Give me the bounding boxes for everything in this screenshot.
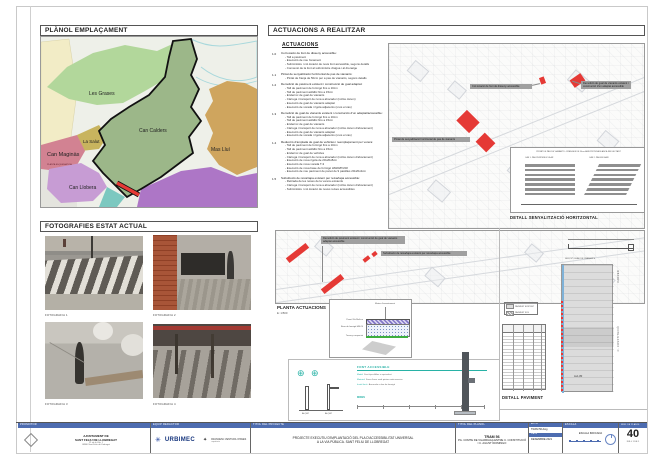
zone-label-can-calders: Can Calders: [139, 128, 167, 134]
tb-equip-content: ✳ URBIMEC ✦ FRANCESC VENTURA I PANES arq…: [151, 428, 250, 453]
ventura-role: arquitecte: [211, 441, 246, 443]
seccio-ann-1: Panot 20x20x4cm: [332, 319, 363, 321]
fotografies-title: FOTOGRAFIES ESTAT ACTUAL: [40, 221, 258, 232]
stripe: [589, 183, 632, 186]
plan-symbol-icon: ⊕: [297, 368, 305, 379]
table-col-line: [513, 325, 514, 391]
callout-reixa: Substitució de reixa/tapa existent per r…: [381, 251, 467, 256]
stripe: [584, 193, 627, 196]
callout-font: Col·locació de font de disseny accessibl…: [470, 84, 532, 89]
marker-pas-1: [456, 110, 479, 133]
scale-tick: [583, 440, 585, 442]
tb-num: NÚM. DE PLÀNOL 40 FULL 1 DE 1: [618, 423, 647, 453]
fotografies-title-text: FOTOGRAFIES ESTAT ACTUAL: [45, 223, 147, 230]
urbimec-gear-icon: ✳: [155, 436, 161, 444]
senyalitzacio-case-left: CAS 1: PAS PERPENDICULAR: [525, 157, 553, 159]
spec-value: Fosa d'acer amb pintura anticorrosiva: [366, 379, 403, 381]
zone-label-can-maginas: Can Maginàs: [47, 152, 79, 158]
paviment-data-table: [502, 324, 546, 390]
mides-title: MIDES: [357, 396, 365, 399]
stripe: [525, 178, 575, 181]
callout-demolicio-paviment: Demolició de paviment existent i constru…: [321, 236, 405, 244]
font-spout: [468, 378, 475, 383]
seccio-line: [568, 248, 634, 249]
ventura-mark-icon: ✦: [203, 437, 207, 443]
actuacio-bullets: - Tall de paviment de formigó fins a 10c…: [281, 144, 373, 174]
senyalitzacio-note: PINTAT DE PAS DE VIANANTS - FRANGES DE 5…: [515, 151, 642, 153]
stripes-straight: [525, 164, 575, 197]
actuacions-list-title: ACTUACIONS: [282, 42, 386, 48]
photo1-people: [63, 239, 66, 247]
photo-2-caption: FOTOGRAFIA 2: [153, 313, 176, 317]
baseline: [521, 204, 637, 205]
photo-3: [45, 322, 143, 399]
spec-value: Ancorada a dau de formigó: [369, 384, 395, 386]
photo1-curb: [45, 294, 143, 310]
photo4-awning: [153, 326, 251, 330]
marker-reixa-1: [363, 255, 371, 262]
emplacament-title: PLÀNOL EMPLAÇAMENT: [40, 25, 258, 36]
detall-paviment-bottom: [499, 409, 647, 410]
photo2-brick-wall: [153, 235, 177, 310]
scale-tick: [590, 440, 592, 442]
seccio-hook: [568, 244, 569, 249]
building-outline: [407, 60, 430, 82]
font-panel-title: FONT ACCESSIBLE: [357, 365, 390, 369]
actuacio-num: 1.4: [272, 141, 281, 175]
seccio-ann-3: Terreny compactat: [332, 335, 363, 337]
font-render: [452, 352, 478, 420]
emplacament-panel: PLÀNOL EMPLAÇAMENT Les Grases Can Calder…: [40, 25, 258, 207]
actuacions-header: ACTUACIONS A REALITZAR: [268, 25, 645, 36]
map-note: PLANTA ESQUEMÀTICA: [47, 164, 72, 166]
legend-label: PAVIMENT NOU: [515, 312, 529, 314]
street-label-constitucio: C. CONSTITUCIÓ: [617, 326, 620, 351]
tb-promotor-content: AJUNTAMENT DE SANT FELIU DE LLOBREGAT Pl…: [18, 428, 150, 453]
planta-actuacions-scale: E: 1/500: [277, 311, 287, 315]
stripes-skewed: [583, 164, 641, 197]
tb-projecte: TÍTOL DEL PROJECTE PROJECTE EXECUTIU D'I…: [250, 423, 455, 453]
actuacio-item: 1.1 Pintat de senyalització horitzontal …: [272, 73, 386, 80]
table-header: [503, 325, 545, 333]
paviment-plan: A≥1,80: [561, 264, 613, 392]
actuacions-header-text: ACTUACIONS A REALITZAR: [273, 27, 365, 34]
zone-label-la-salut: La Salut: [83, 139, 100, 144]
stripe: [525, 164, 575, 167]
actuacio-num: 1.5: [272, 177, 281, 192]
legend-swatch-nou: [506, 311, 514, 316]
paviment-dark-band: [562, 327, 614, 347]
tb-escala: ESCALA ESCALA INDICADA: [562, 423, 618, 453]
stripe: [525, 174, 575, 177]
detall-senyalitzacio-box: PINTAT DE PAS DE VIANANTS - FRANGES DE 5…: [510, 147, 645, 213]
font-base-plate: [454, 411, 476, 415]
marker-gual-2: [286, 243, 309, 263]
alcat-caption-2: ALÇAT: [325, 413, 332, 415]
actuacio-item: 1.2 Demolició de paviment existent i con…: [272, 83, 386, 109]
legend-swatch-existent: [506, 304, 514, 309]
graphic-scale: [569, 441, 601, 442]
dim-tick: [484, 405, 485, 409]
photo3-sphere-1: [93, 322, 113, 340]
data-value: DESEMBRE 2021: [529, 437, 562, 443]
actuacio-bullets: - Tall a paviment- Execució de nou fonam…: [281, 56, 369, 71]
seccio-end-block: [628, 244, 634, 251]
photo3-curb-strip: [85, 370, 143, 386]
callout-gual-existent: Demolició de gual de vianants existent i…: [581, 81, 631, 89]
tb-equip: EQUIP REDACTOR ✳ URBIMEC ✦ FRANCESC VENT…: [150, 423, 250, 453]
zones-map: [41, 37, 257, 207]
stripe: [593, 174, 636, 177]
gual-seccio-caption: SECCIÓ GUAL DE VIANANTS: [565, 258, 595, 260]
legend-label: PAVIMENT EXISTENT: [515, 306, 534, 308]
stripe: [525, 188, 575, 191]
photo-2: [153, 235, 251, 310]
fotografies-panel: FOTOGRAFIES ESTAT ACTUAL FOTOGRAFIA 1 FO…: [40, 221, 258, 421]
dim-line: [568, 239, 634, 240]
stripe: [586, 188, 629, 191]
spec-key: Material: [357, 379, 365, 381]
actuacio-item: 1.0 Col·locació de font de disseny acces…: [272, 52, 386, 71]
gual-seccio-drawing: [565, 237, 637, 257]
table-col-line: [523, 325, 524, 391]
building-outline: [447, 80, 467, 99]
emplacament-map: Les Grases Can Calders La Salut Can Magi…: [40, 36, 258, 208]
zone-label-mas-llui: Mas Lluí: [211, 147, 230, 153]
spec-value: Font tipus Atlas o equivalent: [364, 374, 391, 376]
ground-line: [299, 410, 343, 411]
table-rows: [503, 333, 545, 391]
sheet-full: FULL 1 DE 1: [619, 441, 647, 443]
legend-row-1: PAVIMENT EXISTENT: [506, 304, 536, 309]
plan-symbol-icon: ⊕: [311, 368, 319, 379]
spec-row-2: Material Fosa d'acer amb pintura anticor…: [357, 379, 403, 381]
tb-arxiu-data: ARXIU TRAM 56.dwg DATA DESEMBRE 2021: [528, 423, 562, 453]
spec-row-3: Instal·lació Ancorada a dau de formigó: [357, 384, 395, 386]
seccio-ann-top: Morter d'assentament: [360, 303, 410, 305]
emplacament-title-text: PLÀNOL EMPLAÇAMENT: [45, 27, 128, 34]
spec-key: Model: [357, 374, 363, 376]
tb-planol: TÍTOL DEL PLÀNOL TRAM 56 PG. COMTE DE VI…: [455, 423, 528, 453]
tb-escala-content: ESCALA INDICADA: [563, 428, 618, 453]
scale-tick: [569, 440, 571, 442]
seccio-ann-2: Base de formigó HM-20: [332, 326, 363, 328]
dim-tick: [357, 405, 358, 409]
north-tick: [611, 434, 612, 438]
actuacio-bullets: - Retirada de les reixes de la vorera ex…: [281, 180, 373, 191]
actuacio-item: 1.5 Substitució de reixa/tapa existent p…: [272, 177, 386, 192]
coat-of-arms-icon: [24, 433, 38, 447]
photo-1-caption: FOTOGRAFIA 1: [45, 313, 68, 317]
planol-street-2: I C. AGUSTÍ DOMINGO: [456, 442, 528, 445]
actuacio-item: 1.4 Reducció d'amplada de gual de vehicl…: [272, 141, 386, 175]
table-col-line: [541, 325, 542, 391]
actuacio-num: 1.3: [272, 112, 281, 138]
callout-pintat: Pintat de senyalització horitzontal de p…: [392, 137, 470, 142]
stripe: [591, 178, 634, 181]
actuacio-bullets: - Tall de paviment de formigó fins a 10c…: [281, 116, 383, 138]
sheet-binding-line: [30, 6, 31, 452]
detall-paviment-label: DETALL PAVIMENT: [502, 395, 543, 400]
photo2-tactile-mat: [181, 253, 225, 275]
detall-senyalitzacio-label: DETALL SENYALITZACIÓ HORITZONTAL: [510, 215, 598, 220]
font-elevation-1: [305, 386, 309, 410]
spec-row-1: Model Font tipus Atlas o equivalent: [357, 374, 392, 376]
scale-tick: [597, 440, 599, 442]
sheet-number: 40: [619, 428, 647, 441]
stripe: [598, 164, 641, 167]
tb-promotor: PROMOTOR AJUNTAMENT DE SANT FELIU DE LLO…: [18, 423, 150, 453]
photo-4-caption: FOTOGRAFIA 4: [153, 402, 176, 406]
north-circle-icon: [605, 434, 616, 445]
leader-line: [322, 246, 323, 282]
planta-actuacions-label: PLANTA ACTUACIONS: [277, 305, 326, 310]
tb-num-content: 40 FULL 1 DE 1: [619, 428, 647, 443]
tb-projecte-content: PROJECTE EXECUTIU D'IMPLANTACIÓ DEL PLA …: [251, 428, 455, 453]
actuacio-item: 1.3 Demolició de gual de vianants existe…: [272, 112, 386, 138]
actuacio-bullets: - Tall de paviment de formigó fins a 10c…: [281, 87, 362, 109]
dim-tick: [383, 405, 384, 409]
dim-tick: [435, 405, 436, 409]
photo-4: [153, 324, 251, 398]
slab-isometric: [362, 341, 396, 355]
photo-1: [45, 236, 143, 310]
urbimec-logo-text: URBIMEC: [165, 437, 195, 443]
table-col-line: [533, 325, 534, 391]
paviment-red-dashed-limit: [561, 301, 563, 393]
spec-key: Instal·lació: [357, 384, 367, 386]
layer-terreny: [366, 336, 408, 338]
stripe: [596, 169, 639, 172]
actuacio-num: 1.1: [272, 73, 281, 80]
actuacio-bullets: - Pintat de franja de 50cm per a pas de …: [281, 77, 367, 81]
senyalitzacio-case-right: CAS 2: PAS EN BIAIX: [589, 157, 609, 159]
zone-label-les-grases: Les Grases: [89, 91, 115, 97]
marker-reixa-2: [371, 251, 377, 257]
promotor-addr-2: 08980 Sant Feliu de Llobregat: [42, 444, 150, 446]
tb-planol-content: TRAM 56 PG. COMTE DE VILARDAGA ENTRE C. …: [456, 428, 528, 453]
street-label-carrer: CARRER: [617, 270, 620, 283]
zone-label-can-llobera: Can Llobera: [69, 185, 96, 191]
stripe: [525, 193, 575, 196]
title-block: PROMOTOR AJUNTAMENT DE SANT FELIU DE LLO…: [16, 422, 647, 453]
leader-line: [385, 307, 386, 319]
photo-3-caption: FOTOGRAFIA 3: [45, 402, 68, 406]
stripe: [525, 183, 575, 186]
dim-tick: [409, 405, 410, 409]
building-outline: [427, 179, 451, 203]
alcat-caption-1: ALÇAT: [302, 413, 309, 415]
projecte-line-2: A LA VIA PÚBLICA. SANT FELIU DE LLOBREGA…: [251, 440, 455, 444]
scale-tick: [576, 440, 578, 442]
stripe: [525, 169, 575, 172]
photo3-sphere-2: [121, 334, 143, 356]
paviment-legend: PAVIMENT EXISTENT PAVIMENT NOU: [504, 302, 538, 315]
actuacio-num: 1.2: [272, 83, 281, 109]
photo4-shadows: [153, 350, 251, 398]
legend-row-2: PAVIMENT NOU: [506, 311, 536, 316]
photo3-bollard: [75, 342, 84, 384]
paviment-seccio-box: Morter d'assentament Panot 20x20x4cm Bas…: [329, 299, 412, 358]
font-elevation-2-arm: [330, 387, 339, 389]
drawing-sheet: { "colors": { "accent_red": "#e53935", "…: [0, 0, 650, 459]
actuacions-list: ACTUACIONS 1.0 Col·locació de font de di…: [272, 42, 386, 194]
actuacio-num: 1.0: [272, 52, 281, 71]
paviment-dim-label: A≥1,80: [574, 375, 582, 378]
photo2-paving: [177, 279, 251, 310]
